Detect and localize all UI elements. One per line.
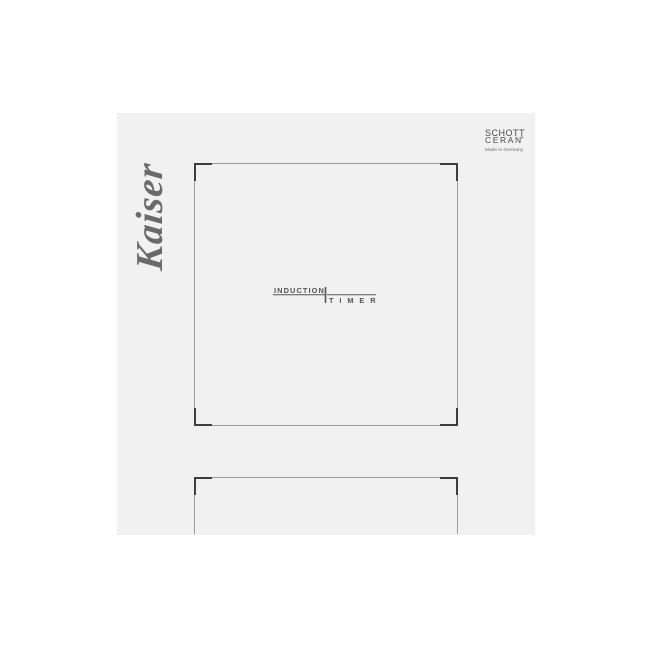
svg-text:INDUCTION: INDUCTION bbox=[274, 286, 325, 295]
svg-text:TIMER: TIMER bbox=[329, 296, 380, 305]
